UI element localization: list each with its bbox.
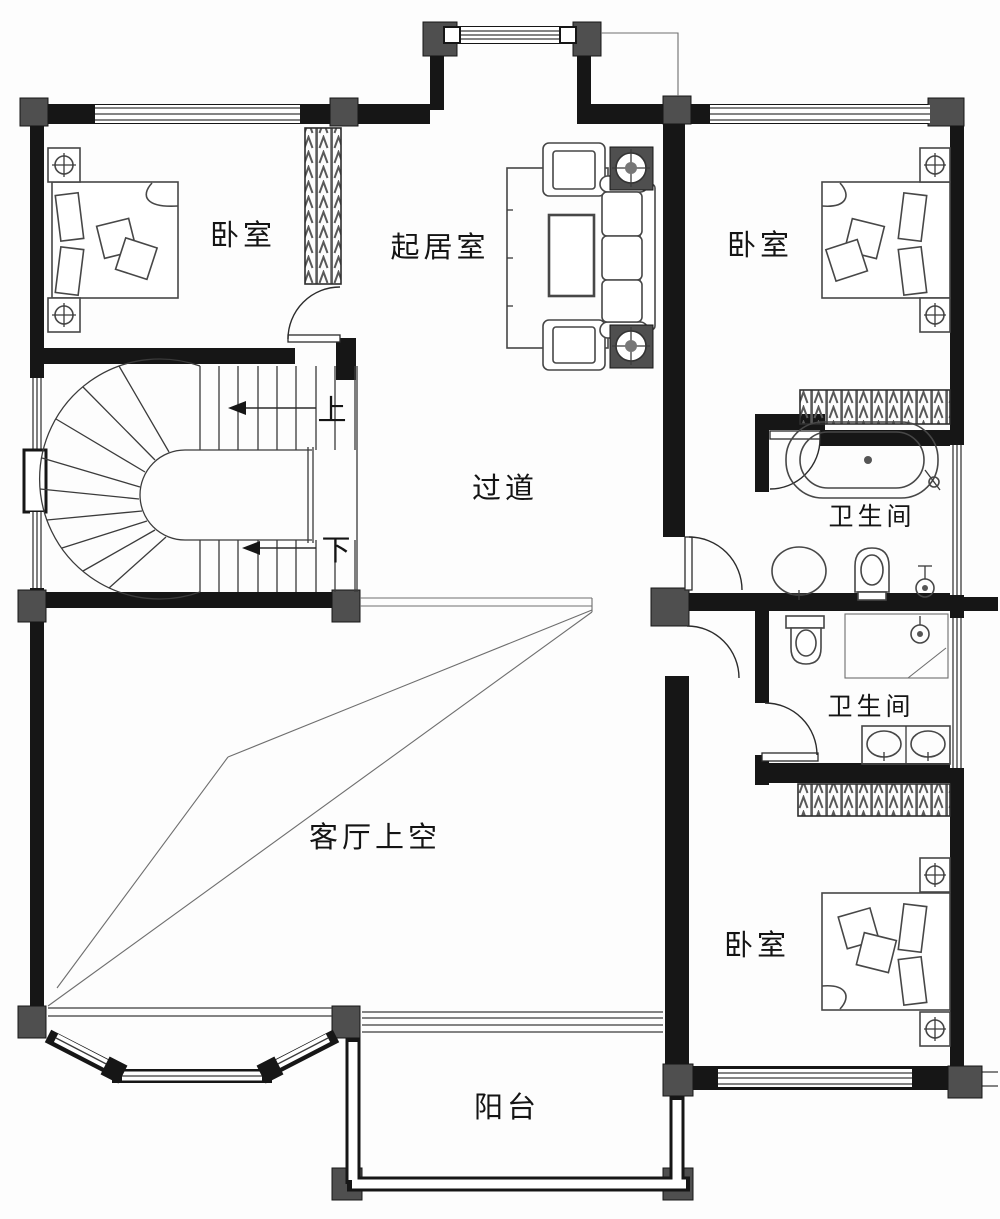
living-room-sofa-set [507,143,655,370]
sofa [600,176,655,338]
nightstand [920,298,950,332]
label-void: 客厅上空 [309,820,441,854]
door-hall-top [685,537,742,590]
armchair-bottom [543,320,605,370]
label-balcony: 阳台 [474,1090,540,1124]
toilet [855,548,889,600]
nightstand [48,298,80,332]
bedroom-bottom-right-furniture [798,784,950,1046]
label-bedroom-top-left: 卧室 [210,218,276,252]
label-bedroom-top-right: 卧室 [727,228,793,262]
wardrobe [305,128,341,284]
wardrobe [800,390,950,424]
pillow [898,247,926,295]
nightstand [48,148,80,182]
corner-stand-bottom [610,325,653,368]
bathroom-bottom-fixtures [786,614,950,764]
staircase [40,359,357,599]
coffee-table [549,215,594,296]
toilet [786,616,824,664]
stairs-down-arrow [242,541,316,555]
floor-plan-page: 卧室 起居室 卧室 过道 卫生间 卫生间 客厅上空 卧室 阳台 上 下 [0,0,1000,1219]
door-bathroom-bottom [762,703,818,761]
void-outline [48,598,592,1006]
bed [822,182,950,298]
door-hall-bottom [687,626,739,678]
floor-plan-drawing: 卧室 起居室 卧室 过道 卫生间 卫生间 客厅上空 卧室 阳台 上 下 [0,0,1000,1219]
bedroom-top-left-furniture [48,128,341,332]
pillow [55,193,83,241]
eave-line [601,33,678,96]
winder-treads [40,366,169,588]
wardrobe [798,784,950,816]
bay-window [48,1036,336,1083]
armchair-top [543,143,605,196]
stairs-up-arrow [228,401,316,415]
pillow [55,247,83,295]
door-bedroom-top-left [288,287,340,342]
bedroom-top-right-furniture [800,148,950,424]
nightstand [920,858,950,892]
door-bathroom-top [770,431,820,489]
shower-fitting [916,566,934,597]
double-vanity [862,726,950,764]
corner-stand-top [610,147,653,190]
label-bathroom-bottom: 卫生间 [827,692,914,721]
label-corridor: 过道 [472,471,538,505]
label-stairs-down: 下 [321,533,354,567]
pillow [898,904,926,952]
cushion [856,933,896,973]
label-bedroom-bottom-right: 卧室 [724,928,790,962]
pillow [898,193,926,241]
sink [772,547,826,600]
nightstand [920,148,950,182]
nightstand [920,1012,950,1046]
pillow [898,957,926,1005]
label-stairs-up: 上 [317,393,350,427]
label-living-room: 起居室 [390,230,489,264]
label-bathroom-top: 卫生间 [828,502,915,531]
shower-area [845,614,948,678]
